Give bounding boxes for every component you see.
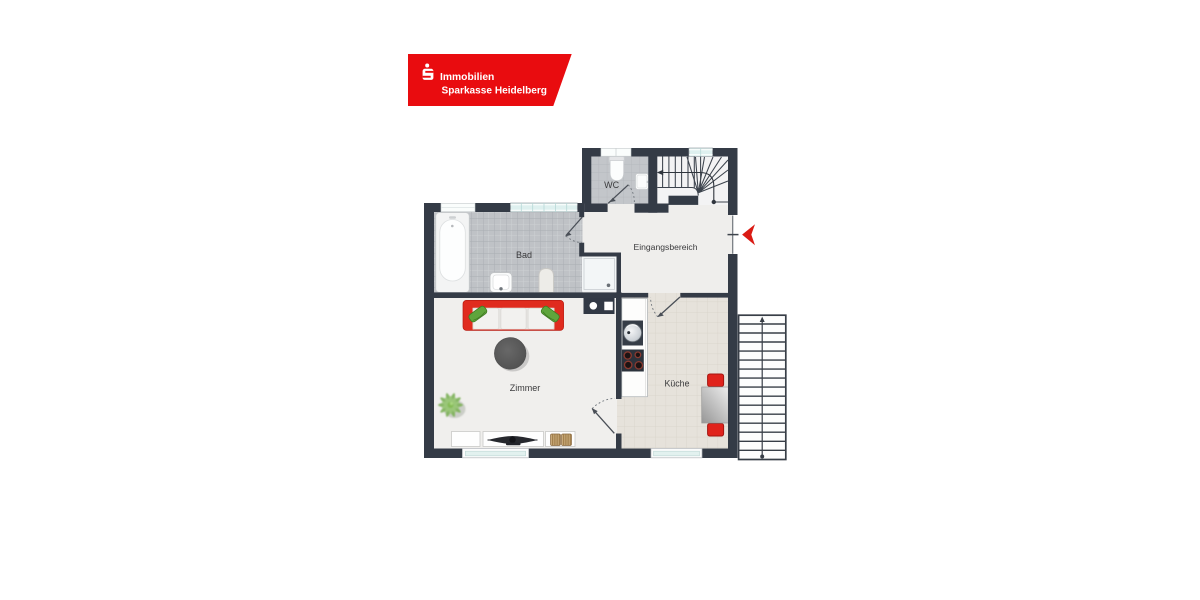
svg-text:Bad: Bad [516,250,532,260]
svg-text:Küche: Küche [665,378,690,388]
svg-text:Immobilien: Immobilien [440,72,494,83]
svg-text:Eingangsbereich: Eingangsbereich [633,242,697,252]
svg-text:Sparkasse Heidelberg: Sparkasse Heidelberg [442,86,547,97]
svg-text:WC: WC [604,180,619,190]
svg-text:Zimmer: Zimmer [510,383,541,393]
